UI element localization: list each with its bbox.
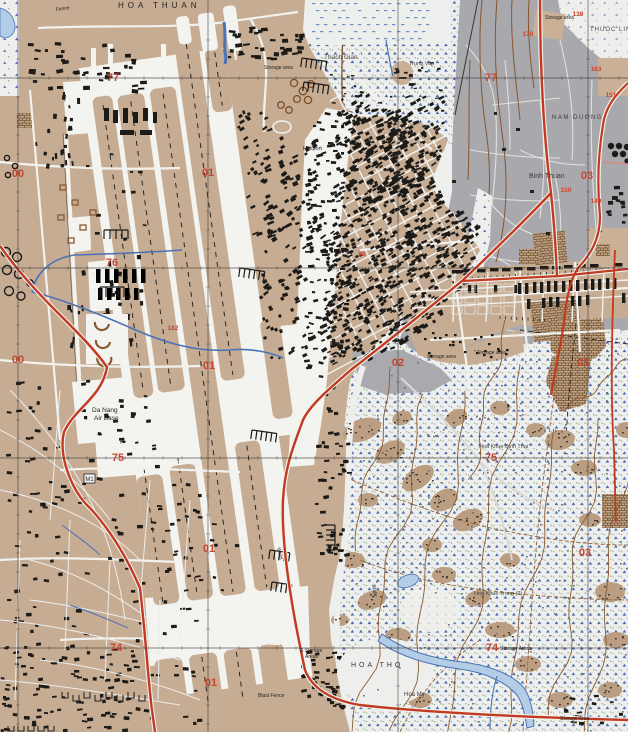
svg-text:75: 75 [112, 452, 124, 464]
svg-text:01: 01 [202, 167, 214, 179]
svg-text:Hoa My: Hoa My [404, 692, 425, 698]
svg-text:75: 75 [485, 452, 497, 464]
svg-text:00: 00 [12, 168, 24, 180]
svg-text:Thach Gian: Thach Gian [324, 54, 358, 61]
svg-text:03: 03 [577, 357, 589, 369]
svg-text:Heliport: Heliport [303, 146, 322, 152]
svg-text:Hoa Khue Binh Thai: Hoa Khue Binh Thai [479, 444, 528, 450]
svg-text:THUOC LIN: THUOC LIN [590, 27, 628, 33]
svg-text:Areas: Areas [305, 654, 319, 660]
svg-text:Trung Vap: Trung Vap [409, 61, 434, 67]
svg-text:00: 00 [12, 354, 24, 366]
svg-text:Binh Thuan: Binh Thuan [529, 173, 565, 180]
svg-text:03: 03 [581, 170, 593, 182]
svg-text:Blast Fence: Blast Fence [258, 693, 285, 699]
svg-text:HOA THUAN: HOA THUAN [118, 1, 201, 10]
svg-text:Storage Areas: Storage Areas [500, 646, 532, 652]
svg-text:Fence: Fence [330, 341, 344, 347]
svg-text:163: 163 [591, 66, 602, 73]
svg-text:01: 01 [203, 543, 215, 555]
svg-text:Air Base: Air Base [94, 415, 119, 422]
svg-text:77: 77 [485, 72, 497, 84]
svg-text:151: 151 [606, 92, 617, 99]
svg-text:Hoa Khue Trung (2): Hoa Khue Trung (2) [474, 591, 522, 597]
svg-text:182: 182 [168, 325, 179, 332]
svg-text:01: 01 [203, 360, 215, 372]
svg-text:76: 76 [106, 257, 118, 269]
svg-text:Storage area: Storage area [477, 350, 506, 356]
svg-text:Storage Area: Storage Area [560, 716, 589, 722]
svg-text:Storage area: Storage area [427, 354, 456, 360]
svg-text:Da Nang: Da Nang [92, 407, 118, 414]
svg-text:M1: M1 [85, 477, 94, 483]
svg-text:139: 139 [573, 11, 584, 18]
svg-text:74: 74 [110, 642, 123, 654]
svg-text:149: 149 [591, 198, 602, 205]
svg-text:Storage area: Storage area [545, 15, 574, 21]
svg-text:170: 170 [523, 31, 534, 38]
svg-text:NAM DUONG: NAM DUONG [552, 115, 603, 121]
svg-text:HOA THO: HOA THO [351, 662, 403, 669]
svg-text:150: 150 [561, 187, 572, 194]
svg-text:77: 77 [107, 72, 119, 84]
svg-text:03: 03 [579, 547, 591, 559]
svg-text:Storage area: Storage area [264, 65, 293, 71]
svg-text:98: 98 [358, 251, 366, 258]
svg-text:01: 01 [205, 677, 217, 689]
svg-text:74: 74 [486, 642, 499, 654]
svg-text:02: 02 [392, 357, 404, 369]
